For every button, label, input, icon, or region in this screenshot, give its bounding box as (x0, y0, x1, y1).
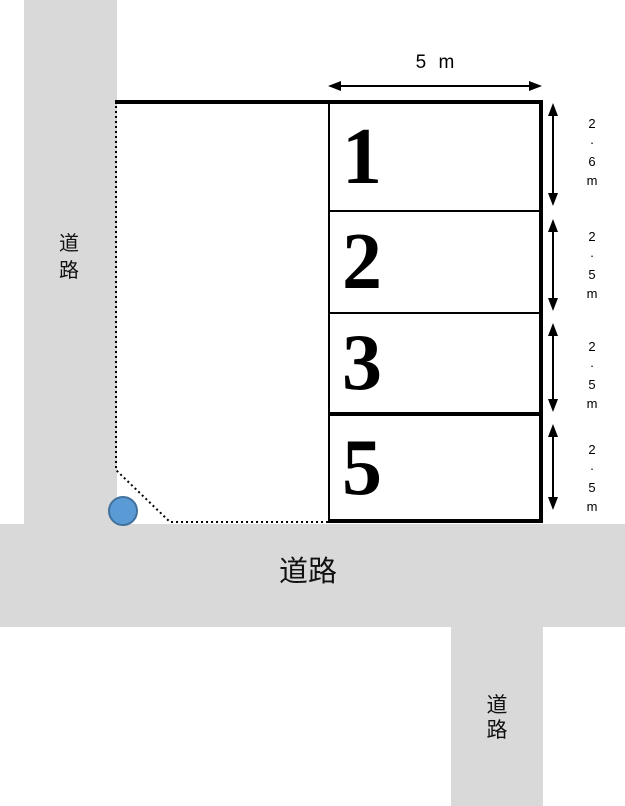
height-dimension-label-4: 2 · 5 m (582, 440, 602, 516)
height-dimension-label-2: 2 · 5 m (582, 227, 602, 303)
height-dimension-label-3: 2 · 5 m (582, 337, 602, 413)
dotted-boundary-line (116, 106, 330, 522)
parking-space-1: 1 (330, 104, 539, 210)
parking-space-2-number: 2 (342, 222, 382, 302)
height-dimension-label-1: 2 · 6 m (582, 114, 602, 190)
width-dimension-label: 5 m (392, 52, 478, 74)
parking-stalls: 1 2 3 5 (328, 100, 543, 523)
parking-space-1-number: 1 (342, 117, 382, 197)
parking-space-5: 5 (330, 412, 539, 519)
width-dimension-arrow (328, 81, 542, 91)
height-dimension-arrow-3 (548, 323, 558, 412)
parking-space-3: 3 (330, 312, 539, 412)
parking-space-3-number: 3 (342, 323, 382, 403)
height-dimension-arrow-4 (548, 424, 558, 510)
parking-space-2: 2 (330, 210, 539, 312)
corner-marker-circle (108, 496, 138, 526)
height-dimension-arrow-2 (548, 219, 558, 311)
parking-space-5-number: 5 (342, 428, 382, 508)
parking-layout-diagram: 道 路 道路 道 路 (0, 0, 625, 806)
height-dimension-arrow-1 (548, 103, 558, 206)
